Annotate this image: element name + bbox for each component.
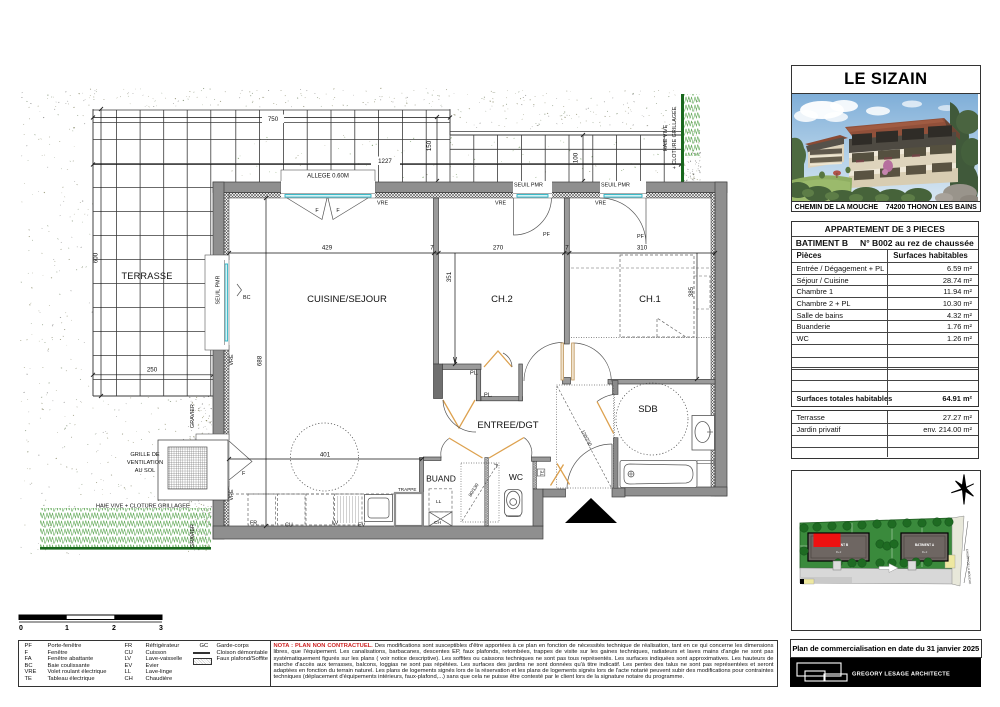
svg-text:1: 1 — [65, 625, 69, 632]
svg-text:270: 270 — [493, 245, 504, 252]
svg-text:120/230: 120/230 — [579, 429, 593, 447]
svg-text:VRE: VRE — [229, 489, 235, 500]
svg-text:CHEMIN DE LA MOUCHE: CHEMIN DE LA MOUCHE — [965, 549, 972, 585]
svg-text:LV: LV — [332, 521, 339, 527]
svg-text:250: 250 — [147, 367, 158, 374]
svg-text:F: F — [315, 208, 319, 214]
svg-text:EV: EV — [358, 523, 366, 529]
svg-text:CU: CU — [285, 523, 293, 529]
svg-text:ALLEGE 0.60M: ALLEGE 0.60M — [307, 174, 349, 180]
svg-text:3: 3 — [159, 625, 163, 632]
svg-text:BUAND: BUAND — [426, 474, 456, 484]
svg-text:R+2: R+2 — [921, 550, 927, 554]
svg-text:BC: BC — [243, 295, 251, 301]
svg-text:7: 7 — [430, 245, 434, 252]
svg-text:CUISINE/SEJOUR: CUISINE/SEJOUR — [307, 294, 387, 305]
svg-text:GREGORY LESAGE ARCHITECTE: GREGORY LESAGE ARCHITECTE — [852, 672, 950, 678]
svg-text:80/130: 80/130 — [468, 482, 481, 498]
svg-text:VRE: VRE — [229, 354, 235, 365]
svg-text:VRE: VRE — [495, 201, 506, 207]
svg-text:SDB: SDB — [638, 404, 658, 415]
svg-text:GRILLE DE: GRILLE DE — [130, 452, 159, 458]
svg-text:PF: PF — [637, 234, 645, 240]
svg-text:HAIE VIVE + CLOTURE GRILLAGEE: HAIE VIVE + CLOTURE GRILLAGEE — [96, 504, 190, 510]
svg-text:AU SOL: AU SOL — [135, 468, 156, 474]
svg-text:VRE: VRE — [595, 201, 606, 207]
svg-text:600: 600 — [93, 252, 100, 263]
svg-text:688: 688 — [257, 355, 264, 366]
svg-text:SEUIL PMR: SEUIL PMR — [601, 183, 630, 189]
svg-text:310: 310 — [637, 245, 648, 252]
svg-text:100: 100 — [573, 152, 580, 163]
svg-text:BATIMENT A: BATIMENT A — [914, 543, 934, 547]
svg-text:PL.: PL. — [470, 371, 479, 377]
svg-text:TE: TE — [540, 470, 545, 476]
svg-text:GRAVIER: GRAVIER — [190, 524, 196, 548]
svg-text:GRAVIER: GRAVIER — [190, 404, 196, 428]
svg-text:351: 351 — [446, 271, 453, 282]
svg-text:F: F — [242, 471, 246, 477]
svg-text:401: 401 — [320, 452, 331, 459]
svg-text:750: 750 — [268, 116, 279, 123]
svg-text:429: 429 — [322, 245, 333, 252]
svg-text:+ CLOTURE GRILLAGEE: + CLOTURE GRILLAGEE — [672, 106, 678, 169]
svg-text:HAIE VIVE: HAIE VIVE — [663, 124, 669, 151]
svg-text:R+2: R+2 — [835, 550, 841, 554]
svg-text:FR: FR — [250, 521, 257, 527]
svg-text:2: 2 — [112, 625, 116, 632]
svg-text:PL.: PL. — [484, 393, 493, 399]
svg-text:TRAPPE: TRAPPE — [398, 487, 416, 492]
svg-text:F: F — [336, 208, 340, 214]
svg-text:0: 0 — [19, 625, 23, 632]
svg-text:SEUIL PMR: SEUIL PMR — [216, 275, 222, 304]
svg-text:CH: CH — [434, 520, 441, 526]
svg-text:CH.1: CH.1 — [639, 294, 661, 305]
svg-text:LL: LL — [436, 499, 442, 505]
svg-text:SEUIL PMR: SEUIL PMR — [514, 183, 543, 189]
svg-text:ENTREE/DGT: ENTREE/DGT — [477, 420, 538, 431]
svg-text:PF: PF — [543, 232, 551, 238]
svg-text:1227: 1227 — [378, 158, 392, 165]
svg-text:TERRASSE: TERRASSE — [121, 271, 172, 281]
svg-text:VRE: VRE — [377, 201, 388, 207]
svg-text:150: 150 — [426, 140, 433, 151]
svg-text:WC: WC — [509, 472, 523, 482]
svg-text:VENTILATION: VENTILATION — [127, 460, 163, 466]
svg-text:7: 7 — [565, 245, 569, 252]
svg-text:CH.2: CH.2 — [491, 294, 513, 305]
